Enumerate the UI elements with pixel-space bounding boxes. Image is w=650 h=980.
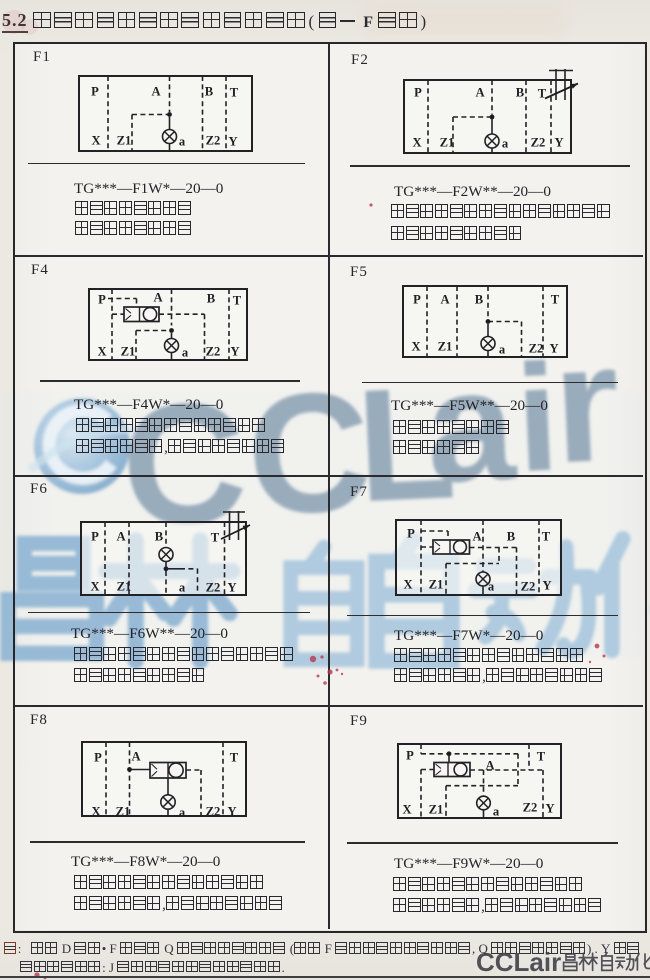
svg-text:CCLair: CCLair — [476, 947, 561, 977]
